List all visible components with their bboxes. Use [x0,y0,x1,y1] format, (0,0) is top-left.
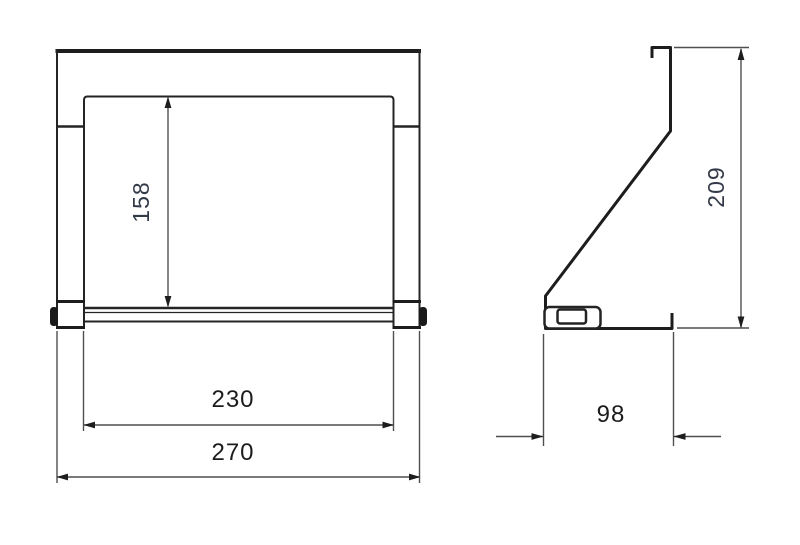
dimension-drawing: 158 230 270 [0,0,800,545]
dim-opening-width-label: 230 [211,386,254,413]
drawing-canvas: 158 230 270 [0,0,800,545]
dim-overall-width-label: 270 [211,439,254,466]
front-view-dimensions: 158 230 270 [57,97,421,484]
dim-overall-width-arrow-left [57,474,69,481]
dim-overall-height-arrow-up [738,48,745,60]
side-view [545,48,673,329]
dim-base-depth-label: 98 [597,401,626,428]
side-clamp-inner [558,310,587,324]
dim-overall-height-label: 209 [703,166,729,207]
dim-overall-height-arrow-down [738,317,745,329]
front-right-end-tab [419,307,427,326]
dim-base-depth-arrow-right [674,433,686,440]
dim-opening-width-arrow-right [383,422,395,429]
dim-opening-height-arrow-up [165,97,172,109]
dim-opening-width-arrow-left [84,422,96,429]
dim-opening-height-label: 158 [128,181,154,222]
side-profile-outline [546,48,673,329]
dim-opening-height-arrow-down [165,296,172,308]
front-left-end-tab [50,307,58,326]
dim-overall-width-arrow-right [409,474,421,481]
dim-base-depth-arrow-left [532,433,544,440]
front-view [50,49,427,329]
side-view-dimensions: 209 98 [496,48,749,447]
